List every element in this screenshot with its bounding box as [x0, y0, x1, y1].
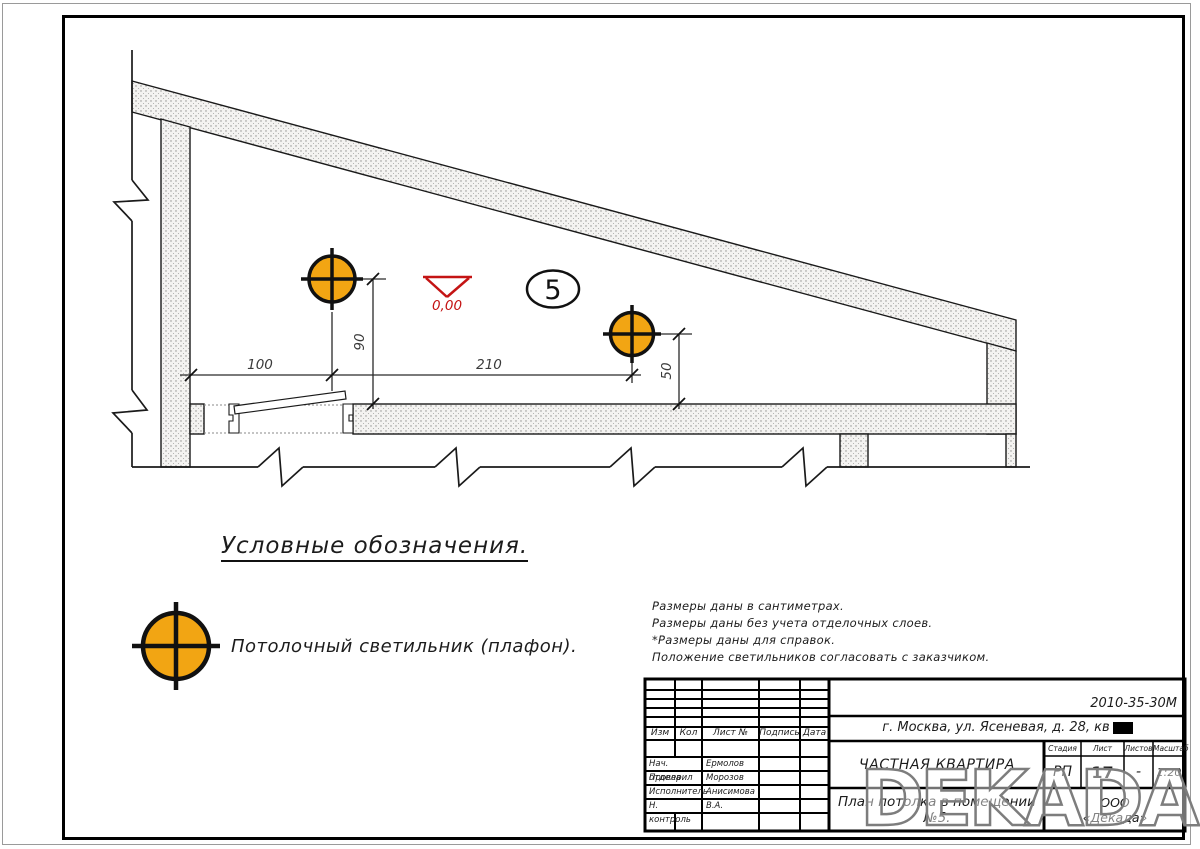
column-izm: Изм	[645, 727, 675, 740]
break-symbol-bottom-2	[435, 448, 480, 486]
door-symbol	[204, 391, 353, 433]
room-number-bubble: 5	[527, 271, 579, 308]
dim-label-50: 50	[659, 362, 675, 379]
role-label: Нач. отдела	[645, 757, 702, 771]
column-data: Дата	[800, 727, 829, 740]
level-mark-label: 0,00	[432, 298, 462, 314]
break-symbol-left-2	[113, 390, 147, 433]
break-symbol-bottom-3	[610, 448, 655, 486]
door-leaf	[234, 391, 346, 414]
role-label: Проверил	[645, 771, 702, 785]
level-mark: 0,00	[423, 277, 472, 314]
level-mark-leg-left	[426, 278, 447, 297]
role-label: Исполнитель	[645, 785, 702, 799]
titleblock-doc-number: 2010-35-30М	[830, 694, 1177, 713]
role-label: Н. контроль	[645, 799, 702, 813]
role-name	[702, 799, 759, 813]
address-text: г. Москва, ул. Ясеневая, д. 28, кв	[882, 720, 1109, 735]
wall-pier-2	[1006, 434, 1016, 467]
wall-pier-1	[840, 434, 868, 467]
break-symbol-left-1	[114, 180, 148, 221]
notes-block: Размеры даны в сантиметрах. Размеры даны…	[652, 598, 989, 666]
censored-apartment-number	[1113, 722, 1133, 734]
wall-bottom-left	[190, 404, 204, 434]
column-podpis: Подпись	[759, 727, 800, 740]
note-line: Размеры даны в сантиметрах.	[652, 598, 989, 615]
wall-bottom-right	[353, 404, 1016, 434]
note-line: Размеры даны без учета отделочных слоев.	[652, 615, 989, 632]
role-name: Ермолов	[702, 757, 759, 771]
dim-label-90: 90	[352, 333, 368, 350]
note-line: Положение светильников согласовать с зак…	[652, 649, 989, 666]
break-symbol-bottom-4	[782, 448, 827, 486]
titleblock-address: г. Москва, ул. Ясеневая, д. 28, кв	[830, 716, 1185, 739]
column-kol: Кол	[675, 727, 702, 740]
drawing-sheet: 100 210 90 50 0,00 5	[0, 0, 1200, 849]
watermark-logo: DEKADA	[860, 756, 1195, 846]
ceiling-light-1	[301, 248, 363, 310]
dim-label-100: 100	[247, 357, 273, 373]
stage-label: Стадия	[1044, 741, 1081, 756]
level-mark-leg-right	[447, 278, 469, 297]
sheet-label: Лист	[1081, 741, 1124, 756]
wall-left	[161, 119, 190, 467]
door-jamb-right	[343, 404, 353, 433]
wall-top-sloped	[132, 81, 1016, 351]
sheets-label: Листов	[1124, 741, 1153, 756]
role-name: Анисимова В.А.	[702, 785, 759, 799]
break-symbol-bottom-1	[258, 448, 303, 486]
legend-light-label: Потолочный светильник (плафон).	[231, 636, 577, 657]
legend-heading: Условные обозначения.	[221, 533, 528, 562]
ceiling-light-2	[603, 305, 661, 363]
room-number: 5	[544, 275, 561, 306]
legend-light-symbol	[132, 602, 220, 690]
role-name: Морозов	[702, 771, 759, 785]
note-line: *Размеры даны для справок.	[652, 632, 989, 649]
dim-label-210: 210	[476, 357, 502, 373]
column-list: Лист №	[702, 727, 759, 740]
scale-label: Масштаб	[1153, 741, 1185, 756]
